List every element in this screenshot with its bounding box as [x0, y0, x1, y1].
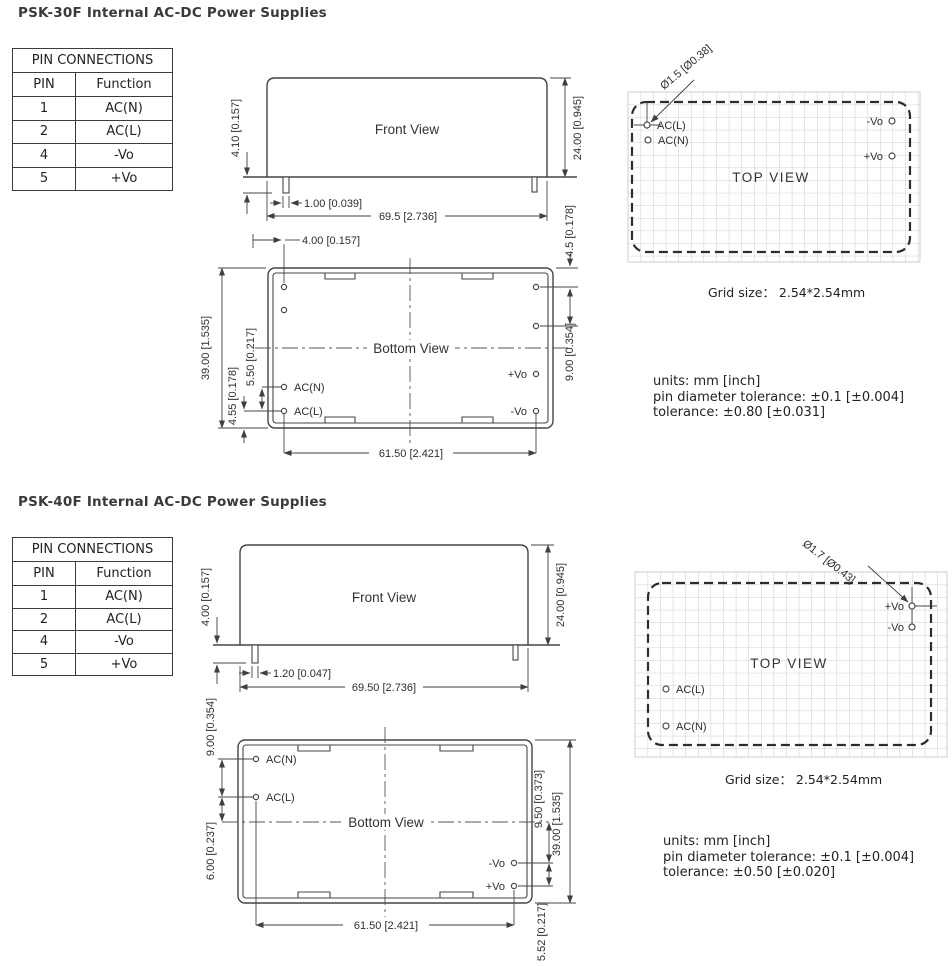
pin-marker: [889, 118, 895, 124]
dimension-label: 24.00 [0.945]: [555, 563, 567, 627]
pin-label: -Vo: [866, 116, 883, 128]
bottom-view-drawing: Bottom View AC(N) AC(L) +Vo -Vo: [200, 205, 578, 460]
pin-lead: [283, 177, 289, 193]
psk40f-drawings: 4.00 [0.157] 1.20 [0.047] 69.50 [2.736] …: [0, 488, 952, 966]
dimension-label: 39.00 [1.535]: [200, 316, 212, 380]
view-label: TOP VIEW: [750, 656, 828, 671]
dimension-label: 5.52 [0.217]: [536, 903, 548, 961]
dimension-lines: [213, 545, 554, 692]
pin-label: AC(N): [676, 721, 707, 733]
pin-label: +Vo: [885, 601, 904, 613]
view-label: Front View: [375, 122, 440, 137]
dimension-label: 24.00 [0.945]: [572, 96, 584, 160]
pin-label: AC(L): [266, 792, 295, 804]
pin-marker: [281, 408, 286, 413]
pin-label: AC(L): [294, 406, 323, 418]
pin-label: -Vo: [887, 622, 904, 634]
grid-size-caption: Grid size： 2.54*2.54mm: [725, 769, 882, 788]
dimension-label: 6.00 [0.237]: [205, 822, 217, 880]
dimension-label: 1.00 [0.039]: [304, 198, 362, 210]
pin-marker: [253, 794, 258, 799]
view-label: Bottom View: [373, 341, 449, 356]
top-view-drawing: Ø1.7 [Ø0.43] +Vo -Vo AC(L) AC(N) TOP VIE…: [635, 538, 947, 757]
pin-marker: [909, 603, 915, 609]
pin-label: AC(N): [294, 382, 325, 394]
pin-label: AC(N): [658, 135, 689, 147]
pin-marker: [645, 137, 651, 143]
view-label: Bottom View: [348, 815, 424, 830]
pin-lead: [252, 645, 258, 663]
pin-marker: [533, 371, 538, 376]
note-line: units: mm [inch]: [653, 374, 904, 390]
note-line: tolerance: ±0.50 [±0.020]: [663, 865, 914, 881]
view-label: Front View: [352, 590, 417, 605]
pin-marker: [511, 883, 516, 888]
dimension-label: 4.10 [0.157]: [230, 99, 242, 157]
pin-label: AC(N): [266, 754, 297, 766]
units-notes: units: mm [inch] pin diameter tolerance:…: [663, 834, 914, 881]
pin-marker: [909, 624, 915, 630]
pin-marker: [281, 284, 286, 289]
dimension-label: 69.5 [2.736]: [379, 211, 437, 223]
note-line: tolerance: ±0.80 [±0.031]: [653, 405, 904, 421]
note-line: units: mm [inch]: [663, 834, 914, 850]
dimension-label: 61.50 [2.421]: [354, 920, 418, 932]
pin-marker: [511, 860, 516, 865]
pin-marker: [889, 153, 895, 159]
pin-label: +Vo: [508, 369, 527, 381]
note-line: pin diameter tolerance: ±0.1 [±0.004]: [663, 850, 914, 866]
dimension-label: 1.20 [0.047]: [273, 668, 331, 680]
pin-marker: [253, 756, 258, 761]
pin-label: +Vo: [864, 151, 883, 163]
pin-marker: [663, 723, 669, 729]
pin-label: AC(L): [676, 684, 705, 696]
pin-marker: [533, 323, 538, 328]
pin-marker: [281, 307, 286, 312]
pin-lead: [513, 645, 518, 660]
dimension-label: 5.50 [0.217]: [245, 328, 257, 386]
pin-marker: [644, 122, 650, 128]
bottom-view-drawing: Bottom View AC(N) AC(L) -Vo +Vo: [205, 698, 576, 961]
dimension-label: 61.50 [2.421]: [379, 448, 443, 460]
pin-marker: [663, 686, 669, 692]
pin-label: AC(L): [657, 120, 686, 132]
pin-diameter-callout: Ø1.5 [Ø0.38]: [658, 43, 714, 93]
front-view-drawing: 4.10 [0.157] 1.00 [0.039] 69.5 [2.736] 2…: [230, 78, 584, 223]
dimension-label: 9.00 [0.354]: [564, 323, 576, 381]
view-label: TOP VIEW: [732, 170, 810, 185]
note-line: pin diameter tolerance: ±0.1 [±0.004]: [653, 390, 904, 406]
dimension-label: 39.00 [1.535]: [551, 792, 563, 856]
front-view-drawing: 4.00 [0.157] 1.20 [0.047] 69.50 [2.736] …: [200, 545, 567, 694]
pin-label: -Vo: [510, 406, 527, 418]
dimension-label: 4.5 [0.178]: [564, 205, 576, 257]
dimension-label: 4.00 [0.157]: [200, 568, 212, 626]
units-notes: units: mm [inch] pin diameter tolerance:…: [653, 374, 904, 421]
pin-marker: [533, 408, 538, 413]
pin-label: +Vo: [486, 881, 505, 893]
pin-label: -Vo: [488, 858, 505, 870]
top-view-drawing: Ø1.5 [Ø0.38] AC(L) AC(N) -Vo +Vo TOP VIE…: [628, 43, 920, 262]
dimension-lines: [243, 78, 571, 221]
pin-marker: [533, 284, 538, 289]
dimension-label: 4.00 [0.157]: [302, 235, 360, 247]
pin-marker: [281, 384, 286, 389]
dimension-label: 9.50 [0.373]: [533, 770, 545, 828]
datasheet-page: PSK-30F Internal AC-DC Power Supplies PI…: [0, 0, 952, 966]
pin-lead: [532, 177, 537, 192]
dimension-label: 9.00 [0.354]: [205, 698, 217, 756]
dimension-label: 4.55 [0.178]: [227, 367, 239, 425]
dimension-label: 69.50 [2.736]: [352, 682, 416, 694]
dimension-lines: [218, 740, 576, 925]
grid-size-caption: Grid size： 2.54*2.54mm: [708, 282, 865, 301]
